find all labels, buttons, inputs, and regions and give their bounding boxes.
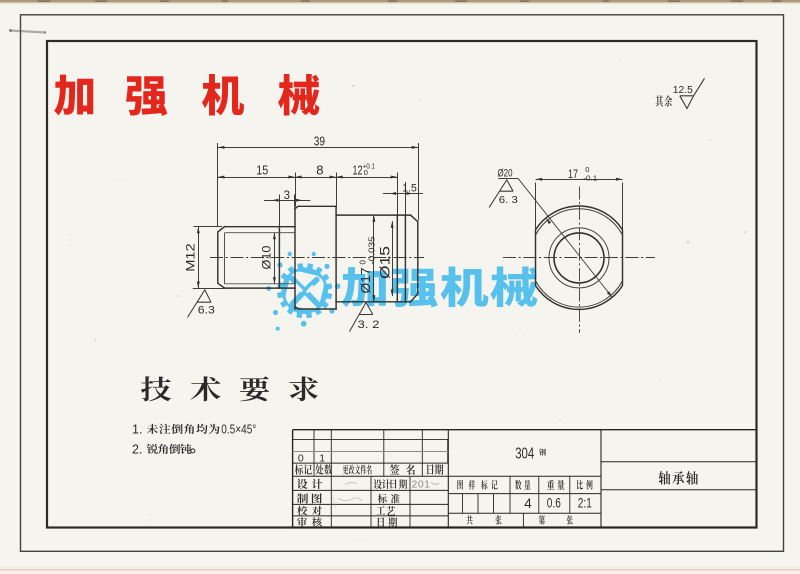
svg-text:Ø17: Ø17: [358, 268, 373, 294]
svg-text:17: 17: [568, 167, 578, 181]
svg-text:Ø15: Ø15: [377, 246, 392, 279]
svg-text:4: 4: [524, 496, 532, 511]
svg-text:3: 3: [284, 190, 290, 202]
svg-text:-0.1: -0.1: [583, 173, 597, 182]
svg-text:1.5: 1.5: [402, 182, 417, 194]
svg-text:12: 12: [353, 162, 363, 177]
svg-text:M12: M12: [186, 243, 198, 272]
svg-text:0: 0: [358, 260, 367, 265]
svg-text:12.5: 12.5: [673, 85, 693, 96]
svg-text:2.: 2.: [132, 442, 142, 456]
svg-text:0: 0: [364, 168, 368, 177]
svg-text:1.: 1.: [132, 422, 142, 436]
svg-text:8: 8: [316, 162, 323, 177]
svg-text:0.5×45°: 0.5×45°: [221, 422, 256, 436]
svg-text:0: 0: [298, 452, 304, 464]
svg-text:3. 2: 3. 2: [358, 319, 380, 331]
svg-text:-0.035: -0.035: [367, 236, 376, 265]
svg-text:6. 3: 6. 3: [499, 194, 518, 206]
svg-text:2:1: 2:1: [578, 496, 592, 511]
svg-text:304: 304: [515, 446, 534, 463]
svg-text:0.6: 0.6: [547, 496, 561, 511]
svg-text:201: 201: [412, 479, 431, 491]
svg-text:Ø20: Ø20: [498, 167, 513, 179]
svg-text:6.3: 6.3: [198, 305, 215, 317]
svg-text:15: 15: [256, 162, 268, 177]
svg-text:1: 1: [319, 452, 325, 464]
svg-text:39: 39: [314, 133, 325, 148]
svg-text:Ø10: Ø10: [260, 245, 274, 269]
